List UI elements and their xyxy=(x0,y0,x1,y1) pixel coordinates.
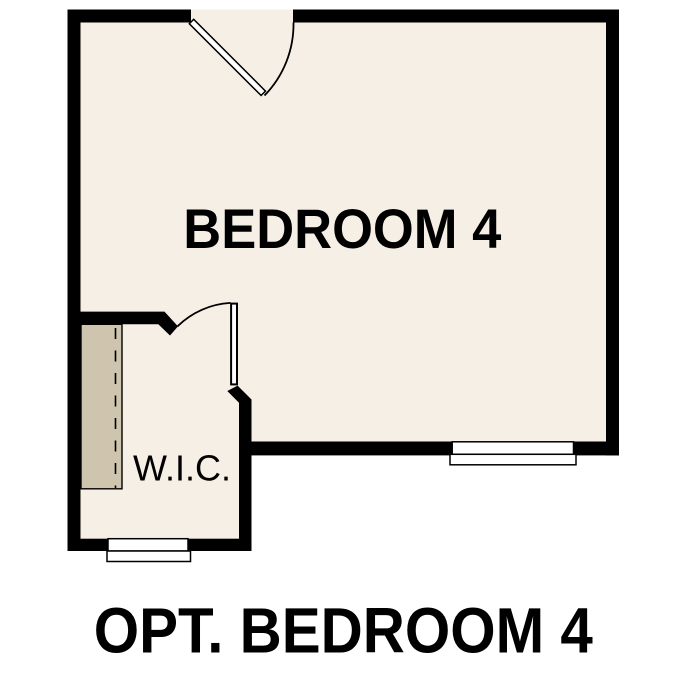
svg-text:OPT. BEDROOM 4: OPT. BEDROOM 4 xyxy=(94,595,594,666)
svg-text:W.I.C.: W.I.C. xyxy=(133,448,231,489)
svg-text:BEDROOM 4: BEDROOM 4 xyxy=(183,197,501,260)
